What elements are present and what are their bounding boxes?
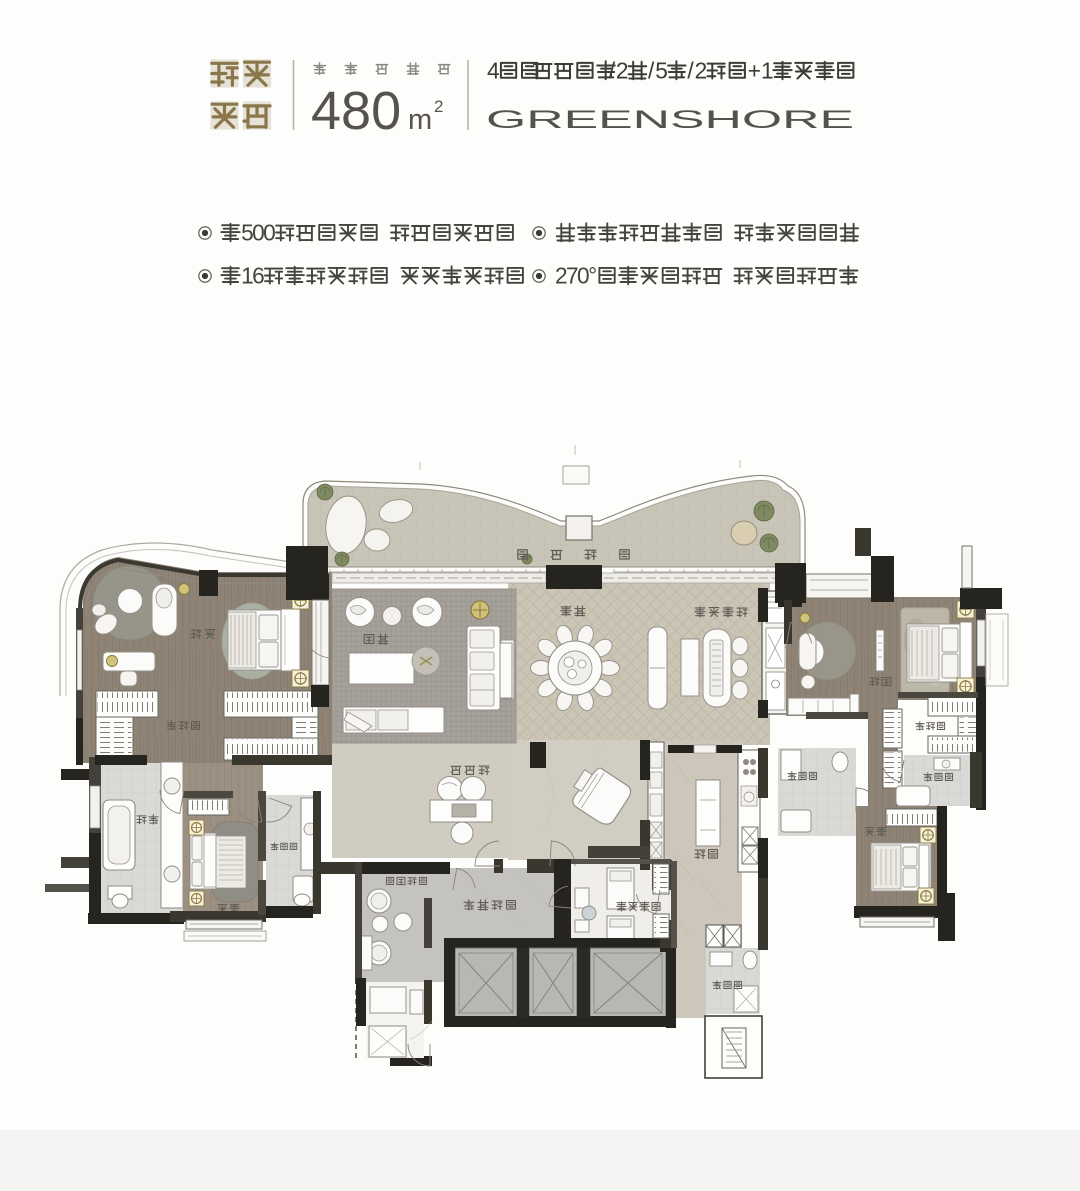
svg-text:m: m — [408, 104, 432, 136]
svg-text:°: ° — [588, 263, 597, 289]
svg-text:1: 1 — [761, 58, 774, 84]
svg-text:2: 2 — [616, 58, 629, 84]
svg-text:5: 5 — [655, 58, 668, 84]
svg-text:/: / — [609, 58, 616, 84]
svg-text:480: 480 — [311, 81, 401, 141]
svg-text:/: / — [648, 58, 655, 84]
svg-text:GREENSHORE: GREENSHORE — [486, 106, 854, 134]
svg-text:4: 4 — [487, 58, 500, 84]
svg-text:0: 0 — [263, 220, 276, 246]
svg-text:+: + — [748, 58, 761, 84]
svg-text:2: 2 — [434, 97, 443, 116]
svg-text:/: / — [687, 58, 694, 84]
svg-text:2: 2 — [695, 58, 708, 84]
svg-text:6: 6 — [252, 263, 265, 289]
